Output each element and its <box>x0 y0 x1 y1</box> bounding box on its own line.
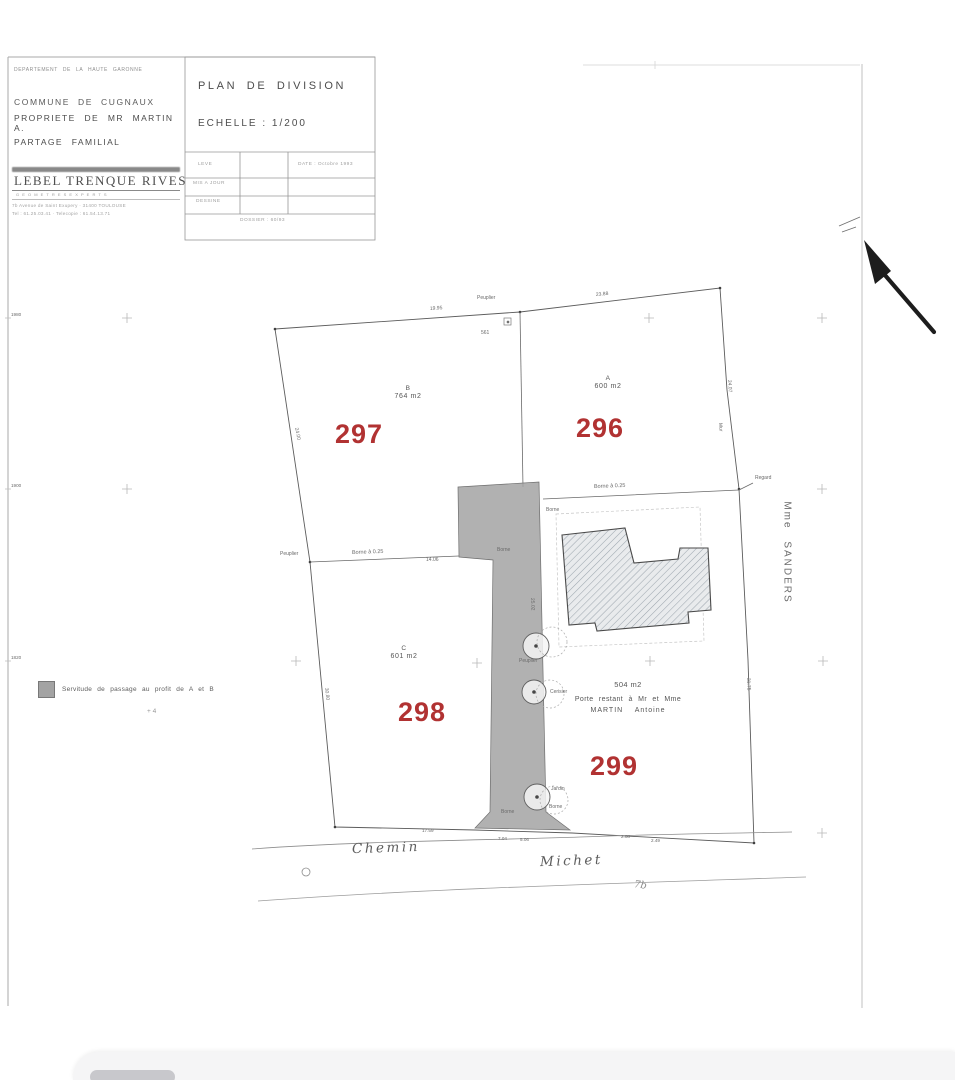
stamp-address: 7b Avenue de Saint Exupery · 31400 TOULO… <box>12 203 180 208</box>
parcel-number-296: 296 <box>576 415 624 442</box>
tree-1-label: Peuplier <box>519 658 538 664</box>
parcel-number-297: 297 <box>335 421 383 448</box>
road-name-michet: Michet <box>540 852 603 870</box>
parcel-number-299: 299 <box>590 753 638 780</box>
dim-bottom-2: 7.04 <box>498 836 507 841</box>
parcel-number-298: 298 <box>398 699 446 726</box>
borne-025-label-a: Borne à 0.25 <box>594 483 626 490</box>
top-boundary-marker <box>504 318 511 325</box>
parcel-A-label: A 600 m2 <box>580 375 636 392</box>
parcel-C-area: 601 m2 <box>376 653 432 662</box>
tree-3-label: Jardin <box>551 786 565 792</box>
dim-right-2: 31.75 <box>745 678 752 691</box>
dim-div-left: 14.06 <box>426 557 439 563</box>
dim-bottom-4: 2.08 <box>621 834 630 839</box>
stamp-name: LEBEL TRENQUE RIVES <box>12 172 180 191</box>
house-building <box>562 528 711 631</box>
parcel-299-note-line2: MARTIN Antoine <box>553 707 703 714</box>
titlebox-row2: MIS A JOUR <box>193 181 225 186</box>
road-bottom-edge <box>258 877 806 901</box>
scanned-plan-page: Borne à 0.25 Borne à 0.25 14.06 Regard P… <box>0 0 955 1080</box>
north-arrow <box>839 217 934 332</box>
stamp-profession: G E O M E T R E S E X P E R T S <box>12 191 180 200</box>
dim-strip: 25.02 <box>529 598 535 611</box>
servitude-legend-swatch <box>38 681 55 698</box>
bottom-sheet[interactable] <box>73 1052 955 1080</box>
divider-A-299 <box>543 483 753 499</box>
plan-linework: Borne à 0.25 Borne à 0.25 14.06 Regard P… <box>0 0 955 1080</box>
dim-bottom-3: 5.06 <box>520 837 529 842</box>
commune-label: COMMUNE DE CUGNAUX <box>14 97 184 107</box>
plan-scale: ECHELLE : 1/200 <box>198 118 307 129</box>
borne-label-3: Borne <box>501 809 515 815</box>
dim-bottom-5: 2.49 <box>651 838 660 843</box>
titlebox-row3: DESSINE <box>196 199 221 204</box>
titlebox-row1: LEVE <box>198 162 212 167</box>
titlebox-dossier: DOSSIER : 60/93 <box>240 218 285 223</box>
parcel-C-letter: C <box>376 645 432 653</box>
department-label: DEPARTEMENT DE LA HAUTE GARONNE <box>14 67 184 73</box>
borne-label-1: Borne <box>546 507 560 513</box>
mur-label: Mur <box>717 423 724 432</box>
owner-label: PROPRIETE DE MR MARTIN A. <box>14 113 184 133</box>
neighbor-label: Mme SANDERS <box>782 493 793 613</box>
dim-top-1: 19.95 <box>430 305 443 312</box>
parcel-299-area: 504 m2 <box>553 680 703 689</box>
surveyor-stamp: LEBEL TRENQUE RIVES G E O M E T R E S E … <box>12 167 180 216</box>
divider-B-A <box>520 312 523 487</box>
titlebox-date: DATE : Octobre 1993 <box>298 162 353 167</box>
dim-right-1: 24.07 <box>726 380 733 393</box>
parcel-B-label: B 764 m2 <box>380 385 436 402</box>
grid-cross-marks <box>122 313 828 838</box>
regard-label: Regard <box>755 475 772 481</box>
dim-bottom-1: 17.59 <box>422 828 434 833</box>
grid-coord-2: 1900 <box>11 483 22 488</box>
parcel-299-note-line1: Porte restant à Mr et Mme <box>553 696 703 703</box>
parcel-B-area: 764 m2 <box>380 393 436 402</box>
sheet-top-faint-line <box>583 61 860 69</box>
grid-coord-1: 1980 <box>11 312 22 317</box>
dim-top-2: 23.88 <box>596 291 609 298</box>
parcel-299-note: 504 m2 Porte restant à Mr et Mme MARTIN … <box>553 680 703 714</box>
borne-label-4: Borne <box>549 804 563 810</box>
peuplier-left-label: Peuplier <box>280 551 299 557</box>
point-561-label: 561 <box>481 330 490 336</box>
road-manhole-circle <box>302 868 310 876</box>
borne-label-2: Borne <box>497 547 511 553</box>
dim-left-2: 30.80 <box>323 688 331 701</box>
stamp-top-bar <box>12 167 180 172</box>
servitude-legend-text: Servitude de passage au profit de A et B <box>62 686 214 693</box>
partage-label: PARTAGE FAMILIAL <box>14 137 184 147</box>
servitude-legend-sub: + 4 <box>147 708 156 715</box>
plan-title: PLAN DE DIVISION <box>198 80 346 92</box>
sheet-thumbnail[interactable] <box>90 1070 175 1080</box>
road-handwritten-mark: 7b <box>633 879 647 892</box>
dim-left-1: 24.00 <box>293 427 302 441</box>
stamp-phone: Tel : 61.25.03.41 · Telecopie : 61.54.13… <box>12 211 180 216</box>
parcel-B-letter: B <box>380 385 436 393</box>
parcel-A-letter: A <box>580 375 636 383</box>
servitude-passage-strip <box>458 482 570 830</box>
title-block: DEPARTEMENT DE LA HAUTE GARONNE COMMUNE … <box>14 67 184 147</box>
parcel-A-area: 600 m2 <box>580 383 636 392</box>
parcel-C-label: C 601 m2 <box>376 645 432 662</box>
borne-025-label-b: Borne à 0.25 <box>352 549 384 556</box>
peuplier-top-label: Peuplier <box>477 295 496 301</box>
road-name-chemin: Chemin <box>352 839 420 857</box>
grid-coord-3: 1820 <box>11 655 22 660</box>
